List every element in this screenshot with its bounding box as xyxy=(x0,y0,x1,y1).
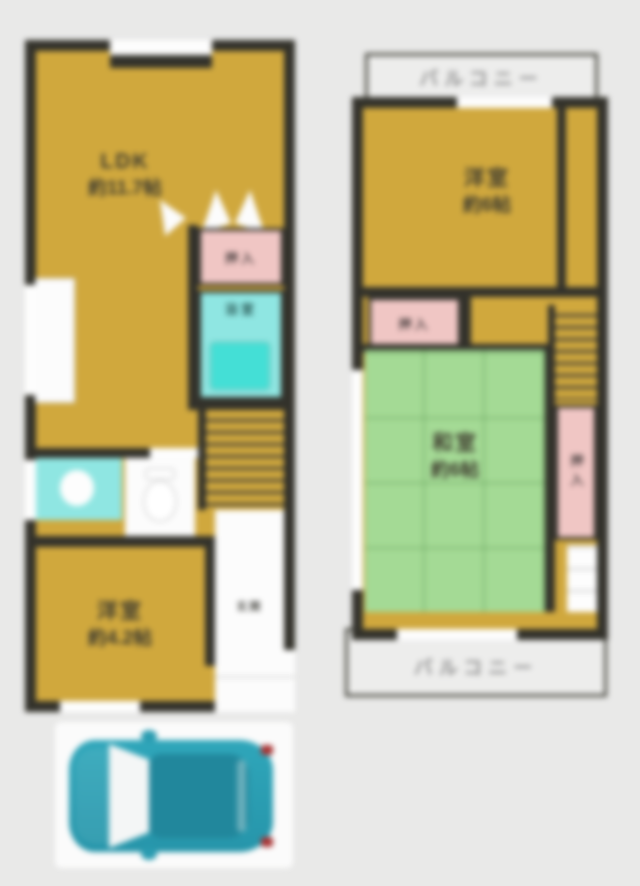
ldk-name: LDK xyxy=(100,148,149,176)
floor1-left-window xyxy=(25,460,36,520)
car-taillight xyxy=(261,837,273,847)
floor2-tatami-size: 約6帖 xyxy=(431,458,480,484)
car-roof xyxy=(149,754,249,838)
porch-step-line xyxy=(215,676,295,678)
toilet-room xyxy=(125,458,195,536)
floor1-left-window xyxy=(25,285,36,395)
ldk-size: 約11.7帖 xyxy=(88,176,162,202)
parking-space xyxy=(55,722,293,868)
floor1-door-gap xyxy=(150,448,198,458)
car-rear-window xyxy=(237,760,246,832)
toilet-tank-icon xyxy=(145,468,175,480)
bathtub-icon xyxy=(209,341,271,391)
washroom xyxy=(36,458,122,520)
floor2-stairs xyxy=(555,305,597,400)
floor2-bottom-window xyxy=(397,629,517,640)
floor2-bedroom-label: 洋室 約6帖 xyxy=(407,155,567,229)
floor1-closet: 押入 xyxy=(198,228,284,286)
floor2-tatami-label: 和室 約6帖 xyxy=(375,415,535,499)
floor2-bedroom-size: 約6帖 xyxy=(463,193,512,219)
floorplan-canvas: LDK 約11.7帖 押入 浴室 xyxy=(0,0,640,886)
floor2-top-window xyxy=(457,97,552,108)
floor1-inner-wall xyxy=(188,225,198,410)
car-mirror xyxy=(141,848,157,860)
floor1-bedroom-name: 洋室 xyxy=(97,598,143,626)
car-taillight xyxy=(261,745,273,755)
floor1-inner-wall xyxy=(25,536,215,547)
balcony-top-label: バルコニー xyxy=(419,64,544,91)
floor2-left-window xyxy=(352,370,363,590)
floor2-balcony-top: バルコニー xyxy=(365,53,598,99)
floor1-bedroom-size: 約4.2帖 xyxy=(88,626,152,652)
car-windshield xyxy=(109,744,149,848)
floor1-inner-wall xyxy=(25,448,150,458)
toilet-icon xyxy=(143,480,177,522)
bath-label: 浴室 xyxy=(201,299,281,318)
floor2-inner-wall xyxy=(363,287,597,297)
floor2-right-window xyxy=(567,545,597,612)
floor2-main-block: 洋室 約6帖 押入 和室 約6帖 押入 xyxy=(352,97,608,640)
floor2-closet-right-label: 押入 xyxy=(567,454,586,492)
kitchen-counter xyxy=(35,278,75,403)
floorplan-blur-layer: LDK 約11.7帖 押入 浴室 xyxy=(0,0,640,886)
entrance: 玄関 xyxy=(215,510,284,660)
floor1-stairs xyxy=(206,410,284,510)
floor1-bottom-window xyxy=(60,701,140,712)
floor1-bathroom: 浴室 xyxy=(198,290,284,400)
floor2-inner-wall xyxy=(545,350,555,612)
balcony-bottom-label: バルコニー xyxy=(414,653,539,680)
floor2-closet-right: 押入 xyxy=(555,405,597,540)
washbasin-icon xyxy=(60,470,94,506)
floor2-bedroom-name: 洋室 xyxy=(464,165,510,193)
entrance-label: 玄関 xyxy=(215,598,284,614)
floor1-closet-label: 押入 xyxy=(225,248,257,267)
floor2-closet-left-label: 押入 xyxy=(398,314,430,333)
floor1-stairs-wall xyxy=(198,410,206,510)
floor2-closet-left: 押入 xyxy=(368,297,461,350)
floor1-top-window xyxy=(110,40,212,55)
floor1-top-window-wall xyxy=(110,55,212,68)
ldk-room-label: LDK 約11.7帖 xyxy=(40,135,210,215)
floor2-tatami-name: 和室 xyxy=(432,430,478,458)
floor2-plan: バルコニー バルコニー 洋室 約6帖 押入 xyxy=(345,50,610,700)
entrance-porch xyxy=(215,650,295,712)
car-mirror xyxy=(141,730,157,742)
floor1-inner-wall xyxy=(188,400,284,410)
floor1-inner-wall xyxy=(205,536,215,666)
car-icon xyxy=(69,740,273,852)
floor1-plan: LDK 約11.7帖 押入 浴室 xyxy=(25,40,295,712)
floor1-bedroom-label: 洋室 約4.2帖 xyxy=(40,585,200,665)
